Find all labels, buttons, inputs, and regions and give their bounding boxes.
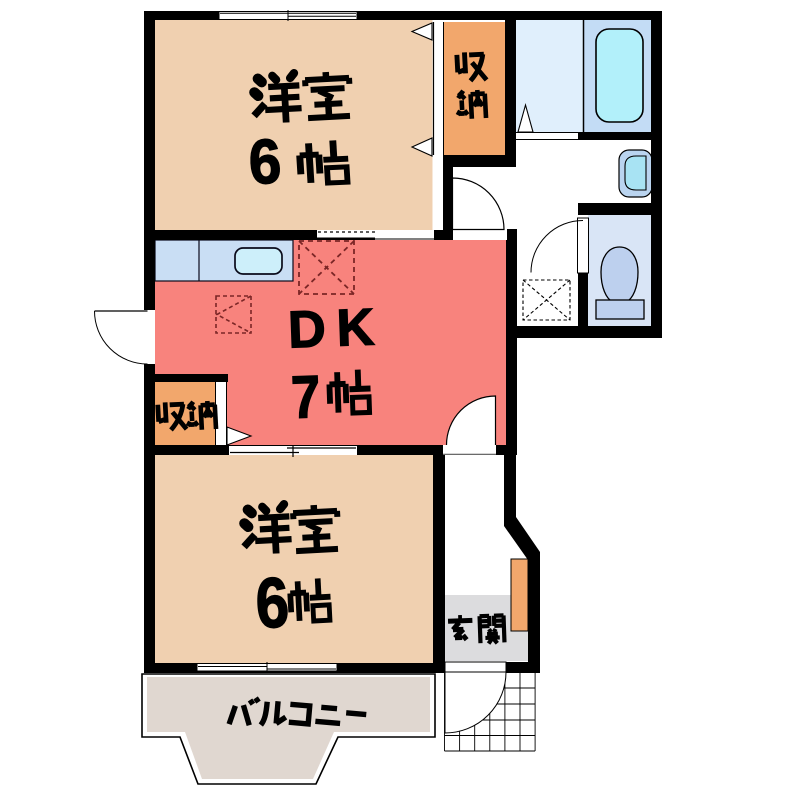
- svg-text:7: 7: [290, 363, 321, 431]
- svg-text:DK: DK: [287, 298, 386, 359]
- svg-text:6: 6: [247, 125, 283, 197]
- svg-text:6: 6: [254, 562, 291, 643]
